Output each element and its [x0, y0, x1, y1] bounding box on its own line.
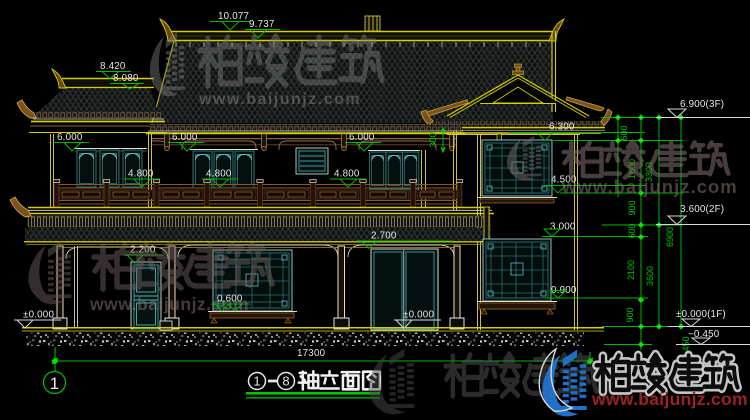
svg-text:6.300: 6.300 — [549, 122, 575, 133]
svg-text:3.600(2F): 3.600(2F) — [680, 204, 724, 215]
svg-text:3600: 3600 — [645, 266, 655, 286]
svg-text:6.900(3F): 6.900(3F) — [680, 99, 724, 110]
svg-text:6.000: 6.000 — [172, 132, 198, 143]
svg-text:6.000: 6.000 — [349, 132, 375, 143]
svg-text:8: 8 — [282, 374, 289, 389]
svg-text:www.baijunjz.com: www.baijunjz.com — [198, 91, 361, 108]
svg-text:6900: 6900 — [665, 227, 675, 247]
svg-text:600: 600 — [627, 223, 637, 238]
svg-text:2100: 2100 — [626, 260, 636, 280]
svg-text:8.420: 8.420 — [100, 61, 126, 72]
svg-text:300: 300 — [428, 132, 438, 147]
svg-text:±0.000: ±0.000 — [403, 310, 434, 321]
svg-text:±0.000(1F): ±0.000(1F) — [676, 309, 726, 320]
svg-text:600: 600 — [619, 125, 629, 140]
svg-text:4.800: 4.800 — [206, 169, 232, 180]
svg-text:4.800: 4.800 — [334, 169, 360, 180]
svg-text:900: 900 — [627, 200, 637, 215]
svg-text:4.800: 4.800 — [128, 169, 154, 180]
svg-text:900: 900 — [625, 307, 635, 322]
svg-text:17300: 17300 — [297, 348, 326, 359]
svg-text:±0.000: ±0.000 — [23, 310, 54, 321]
svg-text:10.077: 10.077 — [218, 11, 249, 22]
svg-text:www.baijunjz.com: www.baijunjz.com — [561, 176, 738, 197]
svg-text:3.000: 3.000 — [550, 222, 576, 233]
svg-text:www.baijunjz.com: www.baijunjz.com — [591, 389, 748, 409]
svg-text:www.baijunjz.com: www.baijunjz.com — [89, 294, 249, 314]
svg-text:9.737: 9.737 — [249, 19, 275, 30]
svg-text:6.000: 6.000 — [57, 132, 83, 143]
svg-text:1: 1 — [253, 374, 260, 389]
svg-text:1: 1 — [50, 374, 59, 393]
svg-text:2.700: 2.700 — [371, 231, 397, 242]
svg-text:8.080: 8.080 — [113, 73, 139, 84]
